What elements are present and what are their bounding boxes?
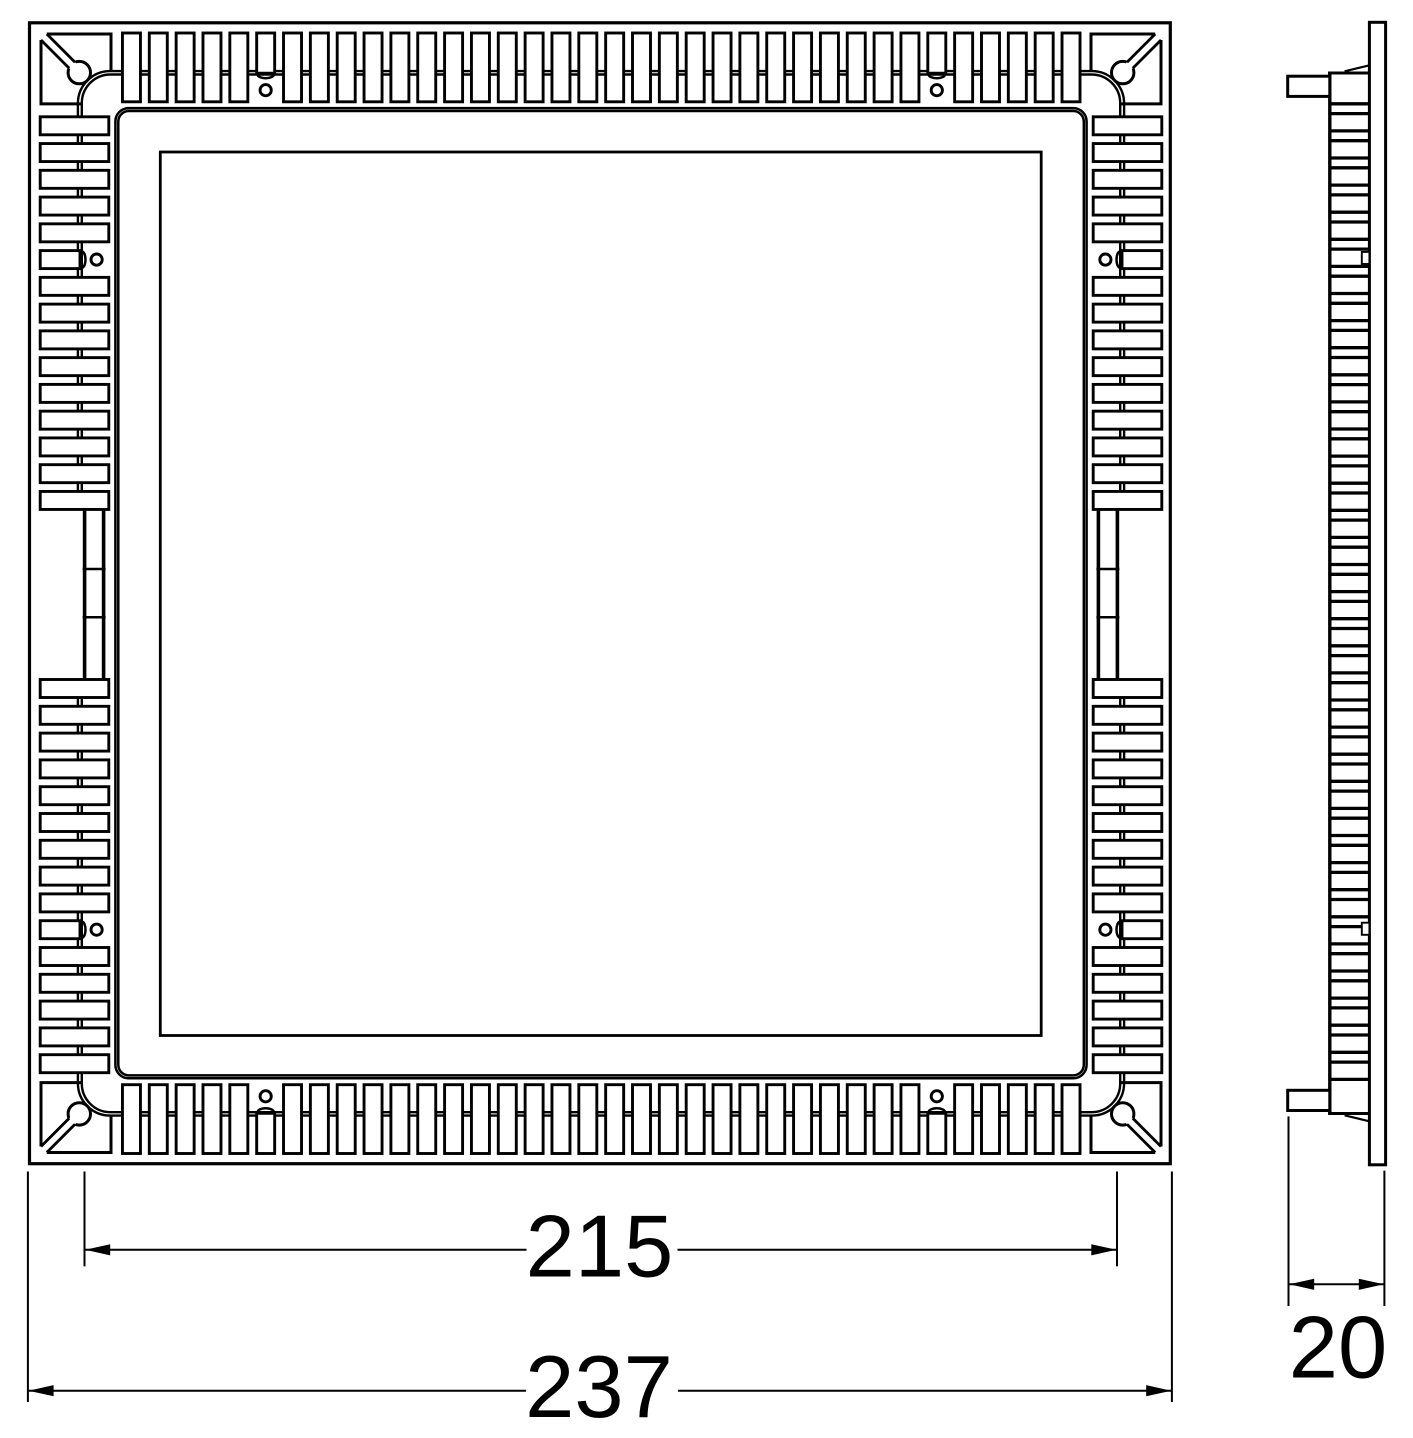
svg-text:237: 237: [525, 1337, 673, 1433]
svg-text:20: 20: [1289, 1298, 1387, 1397]
svg-text:215: 215: [526, 1196, 674, 1295]
